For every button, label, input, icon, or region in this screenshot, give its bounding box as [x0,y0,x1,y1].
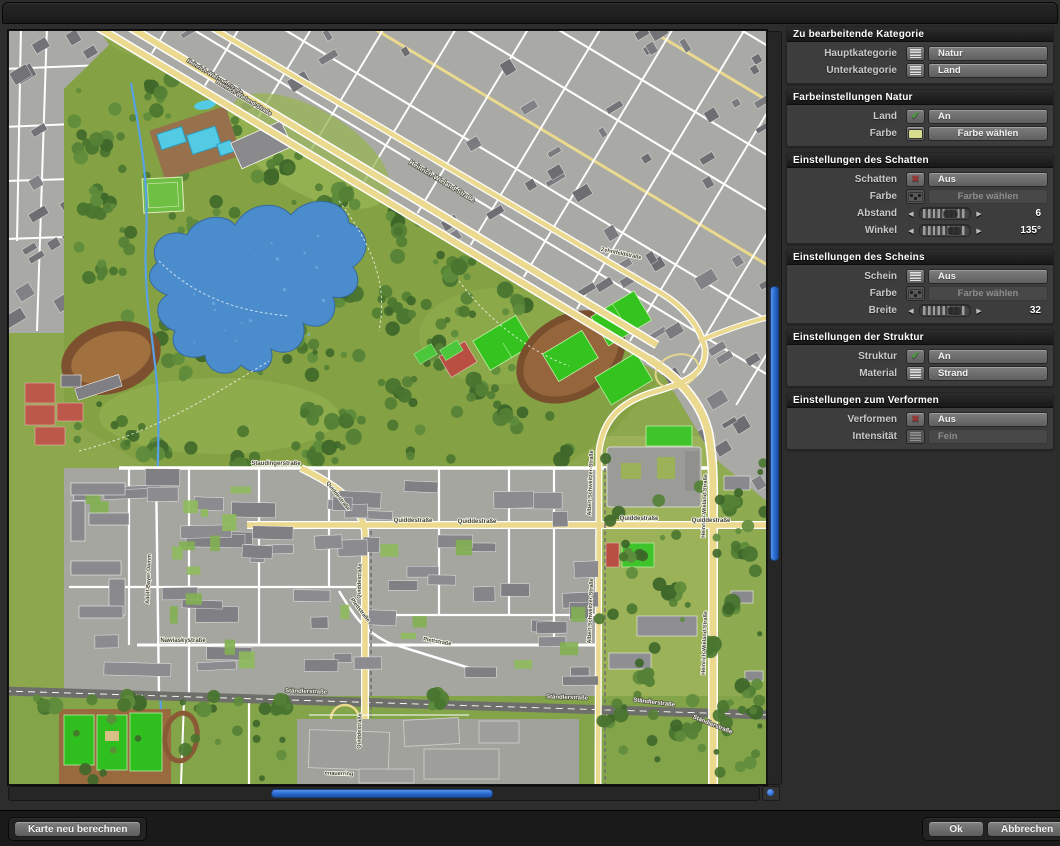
dialog-buttons-group: Ok Abbrechen [922,817,1060,841]
row-label: Struktur [787,351,903,362]
slider-increase-button[interactable]: ▶ [974,227,984,235]
street-label: Quiddestraße [356,563,363,599]
section-title: Einstellungen des Scheins [793,252,925,263]
panel-section: Einstellungen des Schatten Schatten ✖ Au… [786,152,1054,244]
ok-button[interactable]: Ok [928,821,984,837]
cancel-button[interactable]: Abbrechen [987,821,1060,837]
slider-track[interactable] [919,304,971,317]
value-dropdown[interactable]: Fein [928,429,1048,444]
checker-swatch-icon [908,289,923,299]
dropdown-value: Farbe wählen [958,128,1019,139]
row-label: Intensität [787,431,903,442]
checker-swatch-icon-button[interactable] [906,189,925,204]
section-header: Einstellungen der Struktur [787,330,1053,345]
check-icon: ✔ [911,351,920,362]
panel-section: Einstellungen zum Verformen Verformen ✖ … [786,392,1054,450]
swatch-icon-button[interactable] [906,126,925,141]
slider-increase-button[interactable]: ▶ [974,210,984,218]
section-header: Zu bearbeitende Kategorie [787,27,1053,42]
section-header: Einstellungen des Scheins [787,250,1053,265]
value-dropdown[interactable]: Aus [928,269,1048,284]
setting-row: Verformen ✖ Aus [787,411,1049,428]
dropdown-value: Farbe wählen [958,191,1019,202]
value-dropdown[interactable]: Farbe wählen [928,286,1048,301]
vertical-scroll-thumb[interactable] [770,286,779,561]
slider-handle[interactable] [947,306,962,316]
panel-section: Einstellungen des Scheins Schein AusFarb… [786,249,1054,324]
horizontal-scroll-thumb[interactable] [271,789,493,798]
row-label: Land [787,111,903,122]
setting-row: Hauptkategorie Natur [787,45,1049,62]
row-label: Material [787,368,903,379]
setting-row: Intensität Fein [787,428,1049,445]
slider-handle[interactable] [947,226,962,236]
checker-swatch-icon-button[interactable] [906,286,925,301]
x-icon: ✖ [911,415,919,425]
x-icon: ✖ [911,175,919,185]
checker-swatch-icon [908,192,923,202]
map-horizontal-scrollbar[interactable] [8,786,760,801]
check-icon-button[interactable]: ✔ [906,109,925,124]
value-dropdown[interactable]: Natur [928,46,1048,61]
dropdown-value: Fein [938,431,958,442]
recalculate-map-button[interactable]: Karte neu berechnen [14,821,141,837]
row-label: Abstand [787,208,903,219]
slider-decrease-button[interactable]: ◀ [906,307,916,315]
menu-icon [910,369,921,378]
row-label: Winkel [787,225,903,236]
menu-icon [910,432,921,441]
slider-track[interactable] [919,224,971,237]
setting-row: Schein Aus [787,268,1049,285]
menu-icon [910,272,921,281]
value-dropdown[interactable]: Aus [928,412,1048,427]
footer-bar [0,810,1060,846]
map-vertical-scrollbar[interactable] [767,31,782,785]
title-bar [2,2,1058,24]
menu-icon-button[interactable] [906,46,925,61]
section-header: Einstellungen des Schatten [787,153,1053,168]
dropdown-value: An [938,351,951,362]
setting-row: Schatten ✖ Aus [787,171,1049,188]
menu-icon-button[interactable] [906,269,925,284]
scroll-corner-icon [767,789,774,796]
slider-decrease-button[interactable]: ◀ [906,227,916,235]
row-label: Unterkategorie [787,65,903,76]
dropdown-value: Aus [938,271,956,282]
section-header: Farbeinstellungen Natur [787,90,1053,105]
dropdown-value: An [938,111,951,122]
park-sports-field [142,177,184,213]
row-label: Farbe [787,128,903,139]
value-dropdown[interactable]: An [928,349,1048,364]
value-dropdown[interactable]: Aus [928,172,1048,187]
section-title: Zu bearbeitende Kategorie [793,29,924,40]
street-label: Quiddestraße [692,518,731,524]
dropdown-value: Aus [938,174,956,185]
slider-value: 6 [987,208,1049,219]
setting-row: Material Strand [787,365,1049,382]
row-label: Schein [787,271,903,282]
row-label: Verformen [787,414,903,425]
row-label: Farbe [787,191,903,202]
slider-decrease-button[interactable]: ◀ [906,210,916,218]
settings-panel: Zu bearbeitende Kategorie Hauptkategorie… [786,26,1054,455]
slider-increase-button[interactable]: ▶ [974,307,984,315]
application-window: Heinrich-Wieland-StraßeHeinrich-Wieland-… [0,0,1060,845]
x-icon-button[interactable]: ✖ [906,412,925,427]
row-label: Farbe [787,288,903,299]
setting-row: Farbe Farbe wählen [787,188,1049,205]
scroll-corner-button[interactable] [762,786,780,801]
dropdown-value: Natur [938,48,963,59]
slider-handle[interactable] [943,209,958,219]
section-title: Einstellungen der Struktur [793,332,924,343]
map-frame: Heinrich-Wieland-StraßeHeinrich-Wieland-… [8,30,767,785]
section-header: Einstellungen zum Verformen [787,393,1053,408]
section-title: Farbeinstellungen Natur [793,92,913,103]
street-label: Quiddestraße [356,713,363,749]
slider-value: 135° [987,225,1049,236]
setting-row: Breite ◀ ▶ 32 [787,302,1049,319]
setting-row: Farbe Farbe wählen [787,285,1049,302]
setting-row: Farbe Farbe wählen [787,125,1049,142]
menu-icon [910,66,921,75]
slider-value: 32 [987,305,1049,316]
dropdown-value: Farbe wählen [958,288,1019,299]
dropdown-value: Land [938,65,961,76]
row-label: Breite [787,305,903,316]
panel-section: Farbeinstellungen Natur Land ✔ AnFarbe F… [786,89,1054,147]
check-icon-button[interactable]: ✔ [906,349,925,364]
row-label: Schatten [787,174,903,185]
street-label: Quiddestraße [620,516,659,522]
panel-section: Einstellungen der Struktur Struktur ✔ An… [786,329,1054,387]
dropdown-value: Aus [938,414,956,425]
street-label: enauerring [325,771,354,778]
value-dropdown[interactable]: Farbe wählen [928,126,1048,141]
dropdown-value: Strand [938,368,968,379]
x-icon-button[interactable]: ✖ [906,172,925,187]
setting-row: Abstand ◀ ▶ 6 [787,205,1049,222]
setting-row: Unterkategorie Land [787,62,1049,79]
panel-section: Zu bearbeitende Kategorie Hauptkategorie… [786,26,1054,84]
swatch-icon [908,129,923,139]
value-dropdown[interactable]: An [928,109,1048,124]
value-dropdown[interactable]: Strand [928,366,1048,381]
recalculate-group: Karte neu berechnen [8,817,147,841]
row-label: Hauptkategorie [787,48,903,59]
setting-row: Struktur ✔ An [787,348,1049,365]
menu-icon [910,49,921,58]
value-dropdown[interactable]: Farbe wählen [928,189,1048,204]
value-dropdown[interactable]: Land [928,63,1048,78]
map-view[interactable]: Heinrich-Wieland-StraßeHeinrich-Wieland-… [9,31,766,784]
section-title: Einstellungen zum Verformen [793,395,939,406]
street-label: Nawiaskystraße [160,638,206,644]
setting-row: Land ✔ An [787,108,1049,125]
section-title: Einstellungen des Schatten [793,155,929,166]
slider-track[interactable] [919,207,971,220]
street-label: Staudingerstraße [251,461,301,467]
menu-icon-button[interactable] [906,429,925,444]
check-icon: ✔ [911,111,920,122]
street-label: Quiddestraße [458,519,497,525]
menu-icon-button[interactable] [906,63,925,78]
setting-row: Winkel ◀ ▶ 135° [787,222,1049,239]
menu-icon-button[interactable] [906,366,925,381]
street-label: Quiddestraße [394,518,433,524]
